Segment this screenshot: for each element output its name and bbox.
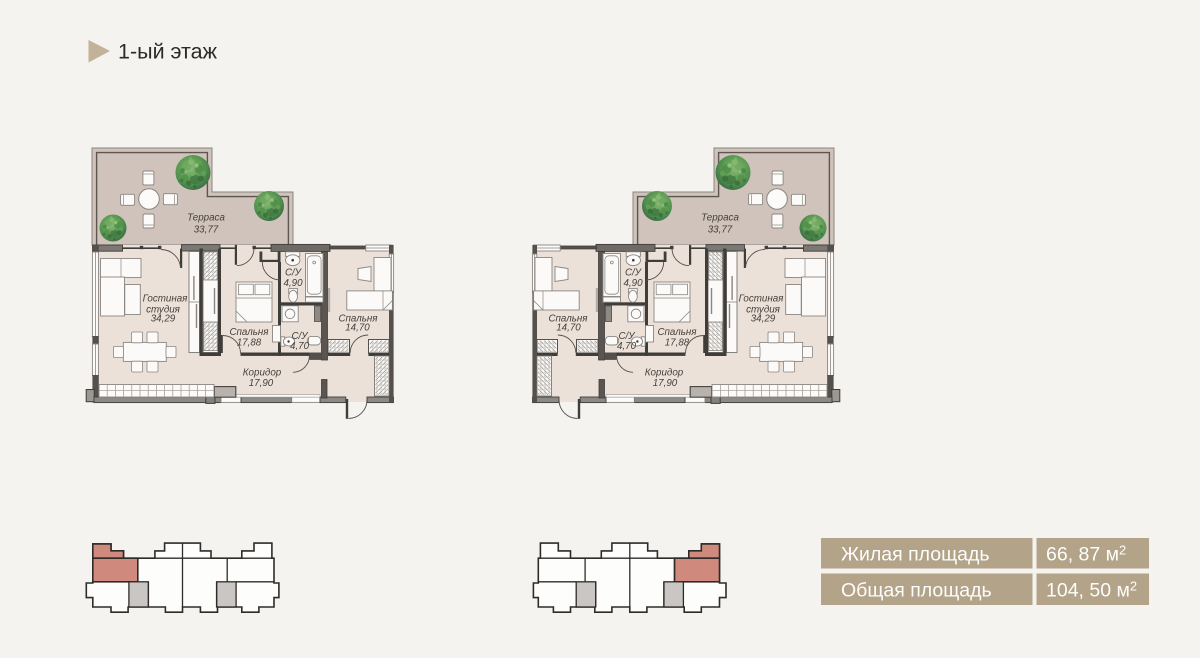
svg-text:17,88: 17,88 — [665, 338, 690, 349]
svg-text:Спальня: Спальня — [657, 327, 697, 338]
svg-text:4,70: 4,70 — [290, 341, 310, 352]
svg-text:4,90: 4,90 — [623, 278, 643, 289]
svg-text:Жилая площадь: Жилая площадь — [841, 544, 990, 566]
svg-text:Гостиная: Гостиная — [143, 294, 189, 305]
svg-text:С/У: С/У — [285, 268, 303, 279]
svg-text:66, 87 м2: 66, 87 м2 — [1046, 543, 1126, 566]
svg-text:17,90: 17,90 — [249, 378, 274, 389]
svg-text:Терраса: Терраса — [701, 213, 739, 224]
svg-text:34,29: 34,29 — [151, 313, 176, 324]
svg-text:14,70: 14,70 — [556, 322, 581, 333]
svg-text:34,29: 34,29 — [751, 313, 776, 324]
svg-text:17,88: 17,88 — [237, 338, 262, 349]
svg-text:17,90: 17,90 — [653, 378, 678, 389]
svg-text:С/У: С/У — [625, 268, 643, 279]
svg-text:Общая площадь: Общая площадь — [841, 580, 992, 602]
svg-text:4,90: 4,90 — [283, 278, 303, 289]
svg-text:Спальня: Спальня — [229, 327, 269, 338]
svg-text:Терраса: Терраса — [187, 213, 225, 224]
svg-text:4,70: 4,70 — [617, 341, 637, 352]
svg-text:1-ый этаж: 1-ый этаж — [118, 40, 218, 64]
svg-text:33,77: 33,77 — [708, 224, 733, 235]
svg-text:104, 50 м2: 104, 50 м2 — [1046, 579, 1137, 602]
svg-text:33,77: 33,77 — [194, 224, 219, 235]
svg-text:Гостиная: Гостиная — [739, 294, 785, 305]
svg-text:14,70: 14,70 — [345, 322, 370, 333]
